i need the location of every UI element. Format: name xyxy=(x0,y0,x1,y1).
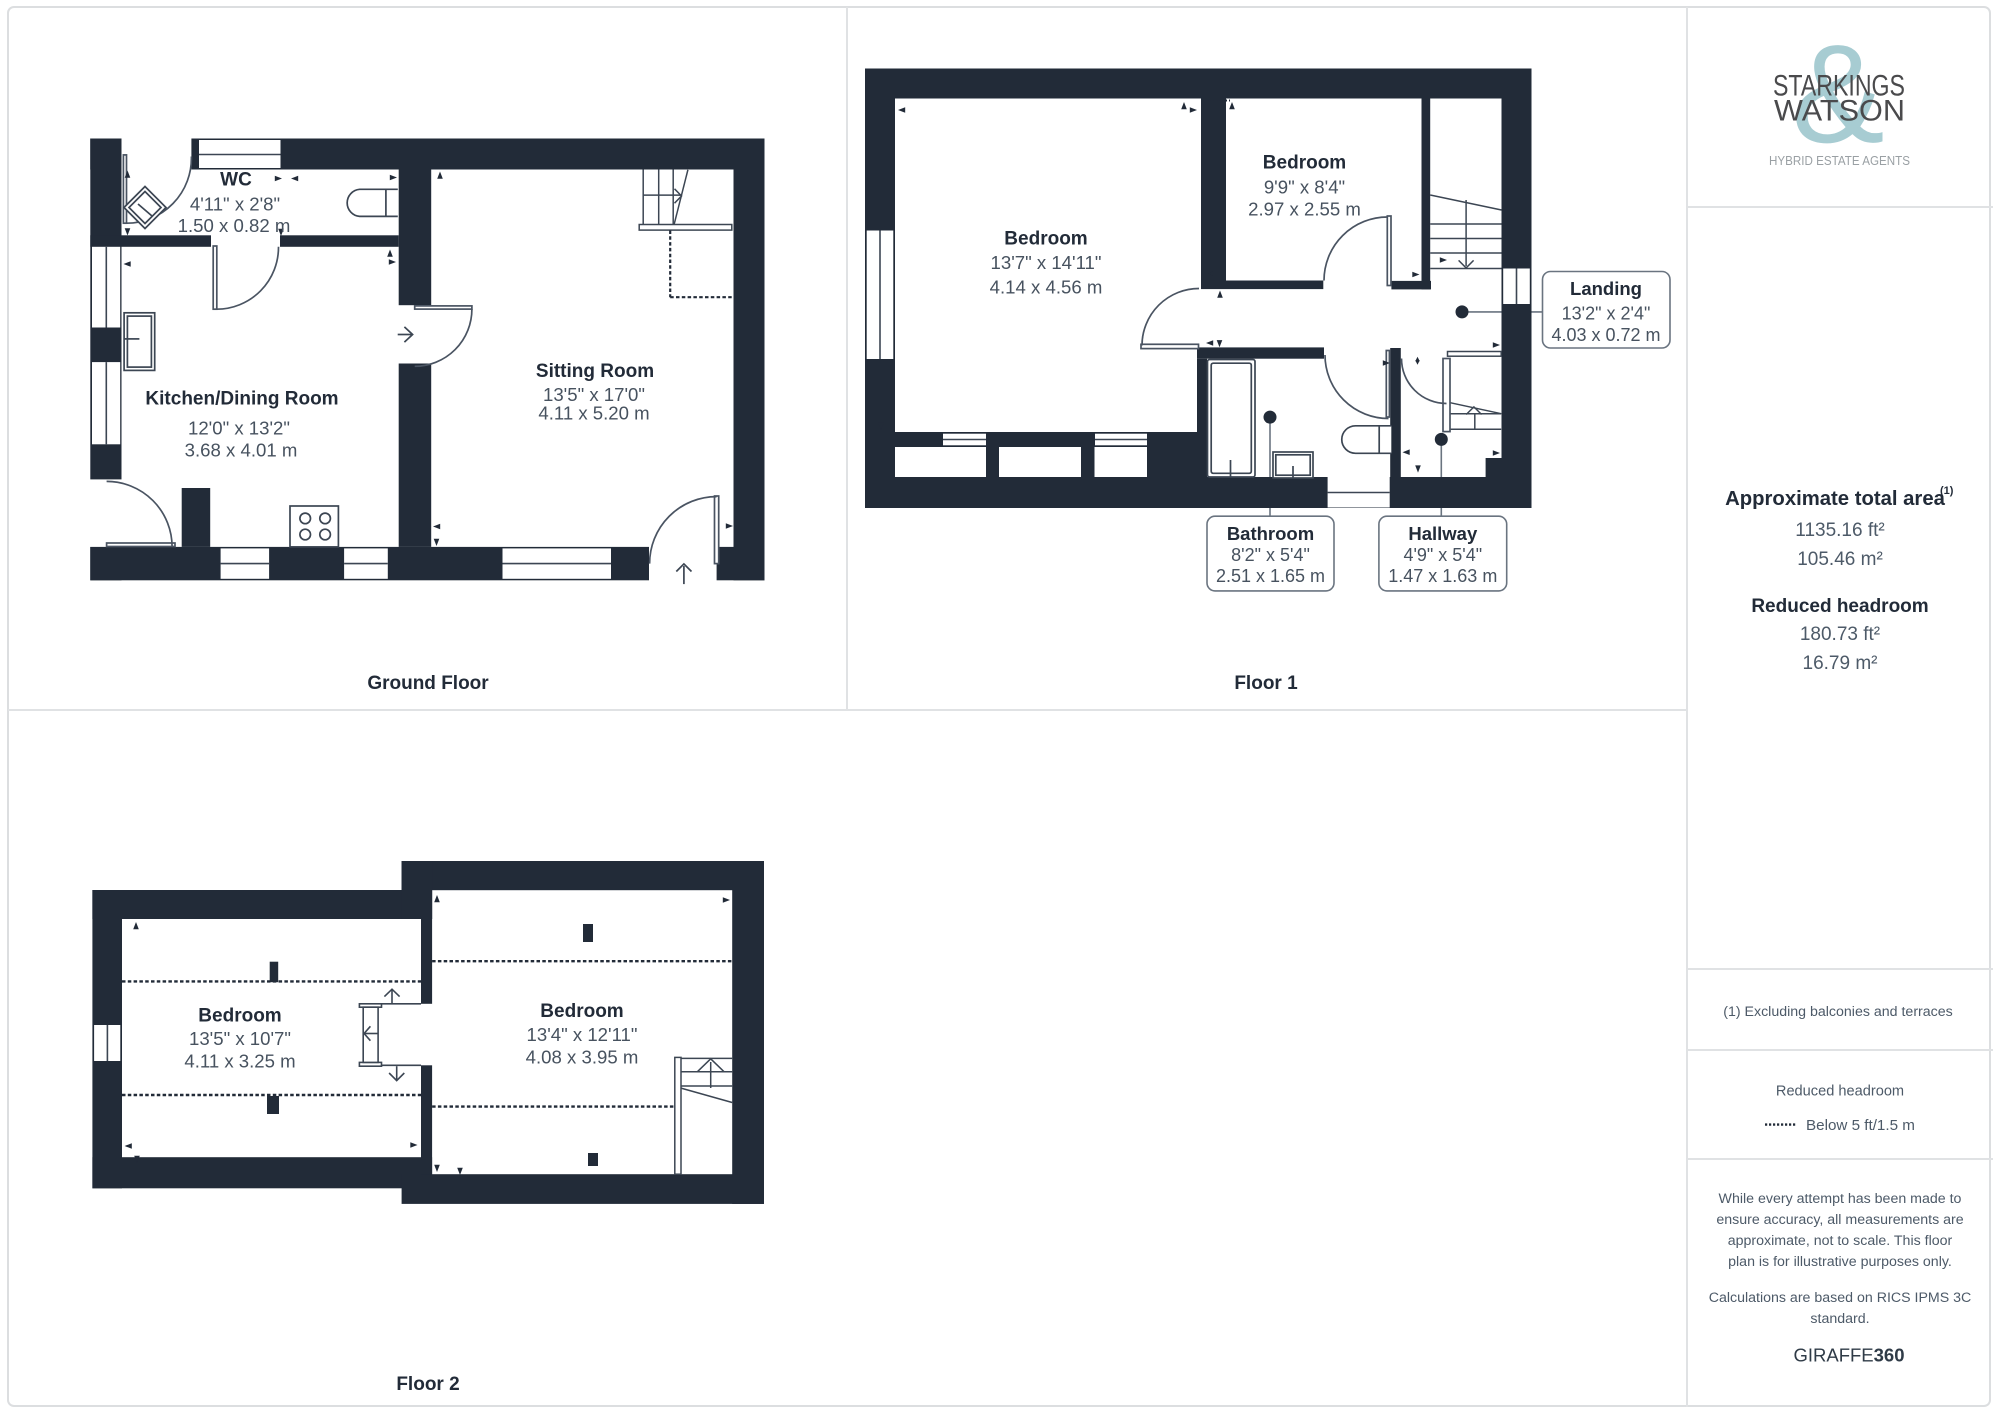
svg-text:9'9" x 8'4": 9'9" x 8'4" xyxy=(1264,177,1345,198)
svg-text:Sitting Room: Sitting Room xyxy=(536,361,654,382)
svg-text:13'7" x 14'11": 13'7" x 14'11" xyxy=(991,252,1102,273)
svg-text:1.47 x 1.63 m: 1.47 x 1.63 m xyxy=(1388,566,1497,586)
svg-text:4.11 x 5.20 m: 4.11 x 5.20 m xyxy=(538,403,649,424)
svg-text:Approximate total area: Approximate total area xyxy=(1725,488,1945,510)
svg-text:Reduced headroom: Reduced headroom xyxy=(1776,1084,1904,1100)
svg-text:standard.: standard. xyxy=(1810,1311,1869,1327)
svg-text:Bedroom: Bedroom xyxy=(198,1006,281,1027)
svg-text:Ground Floor: Ground Floor xyxy=(367,673,489,694)
svg-text:GIRAFFE360: GIRAFFE360 xyxy=(1793,1345,1904,1366)
svg-text:12'0" x 13'2": 12'0" x 13'2" xyxy=(188,418,290,439)
svg-text:13'2" x 2'4": 13'2" x 2'4" xyxy=(1562,304,1651,324)
svg-text:plan is for illustrative purpo: plan is for illustrative purposes only. xyxy=(1728,1254,1952,1270)
svg-text:4.03 x 0.72 m: 4.03 x 0.72 m xyxy=(1551,325,1660,345)
svg-text:Bedroom: Bedroom xyxy=(1263,153,1346,174)
svg-text:Calculations are based on RICS: Calculations are based on RICS IPMS 3C xyxy=(1709,1290,1972,1306)
svg-text:180.73 ft²: 180.73 ft² xyxy=(1800,624,1880,645)
svg-text:Below 5 ft/1.5 m: Below 5 ft/1.5 m xyxy=(1806,1117,1915,1134)
svg-text:4'9" x 5'4": 4'9" x 5'4" xyxy=(1403,545,1482,565)
svg-text:13'4" x 12'11": 13'4" x 12'11" xyxy=(527,1024,638,1045)
svg-text:Reduced headroom: Reduced headroom xyxy=(1751,596,1928,617)
svg-text:WATSON: WATSON xyxy=(1774,95,1905,128)
svg-text:(1): (1) xyxy=(1940,485,1954,497)
svg-text:4'11" x 2'8": 4'11" x 2'8" xyxy=(190,194,280,215)
svg-text:(1) Excluding balconies and te: (1) Excluding balconies and terraces xyxy=(1723,1004,1953,1020)
svg-text:1.50 x 0.82 m: 1.50 x 0.82 m xyxy=(178,215,291,236)
svg-text:Bedroom: Bedroom xyxy=(540,1001,623,1022)
svg-text:16.79 m²: 16.79 m² xyxy=(1803,653,1878,674)
svg-text:4.14 x 4.56 m: 4.14 x 4.56 m xyxy=(990,277,1103,298)
svg-text:Floor 1: Floor 1 xyxy=(1234,673,1298,694)
svg-text:13'5" x 10'7": 13'5" x 10'7" xyxy=(189,1028,291,1049)
svg-text:2.51 x 1.65 m: 2.51 x 1.65 m xyxy=(1216,566,1325,586)
svg-text:Hallway: Hallway xyxy=(1408,523,1478,544)
svg-text:4.08 x 3.95 m: 4.08 x 3.95 m xyxy=(526,1047,639,1068)
svg-text:8'2" x 5'4": 8'2" x 5'4" xyxy=(1231,545,1310,565)
svg-text:approximate, not to scale. Thi: approximate, not to scale. This floor xyxy=(1728,1233,1953,1249)
svg-text:2.97 x 2.55 m: 2.97 x 2.55 m xyxy=(1248,199,1361,220)
svg-text:3.68 x 4.01 m: 3.68 x 4.01 m xyxy=(185,440,298,461)
svg-text:105.46 m²: 105.46 m² xyxy=(1797,549,1883,570)
svg-text:Bedroom: Bedroom xyxy=(1004,229,1087,250)
svg-text:Kitchen/Dining Room: Kitchen/Dining Room xyxy=(145,389,338,410)
svg-text:While every attempt has been m: While every attempt has been made to xyxy=(1719,1191,1962,1207)
svg-text:HYBRID ESTATE AGENTS: HYBRID ESTATE AGENTS xyxy=(1769,153,1910,168)
svg-text:4.11 x 3.25 m: 4.11 x 3.25 m xyxy=(184,1051,295,1072)
svg-text:Floor 2: Floor 2 xyxy=(396,1374,459,1395)
svg-text:WC: WC xyxy=(220,170,252,191)
svg-text:1135.16 ft²: 1135.16 ft² xyxy=(1795,520,1884,541)
svg-text:ensure accuracy, all measureme: ensure accuracy, all measurements are xyxy=(1716,1212,1963,1228)
svg-text:Landing: Landing xyxy=(1570,278,1642,299)
svg-text:Bathroom: Bathroom xyxy=(1227,523,1314,544)
